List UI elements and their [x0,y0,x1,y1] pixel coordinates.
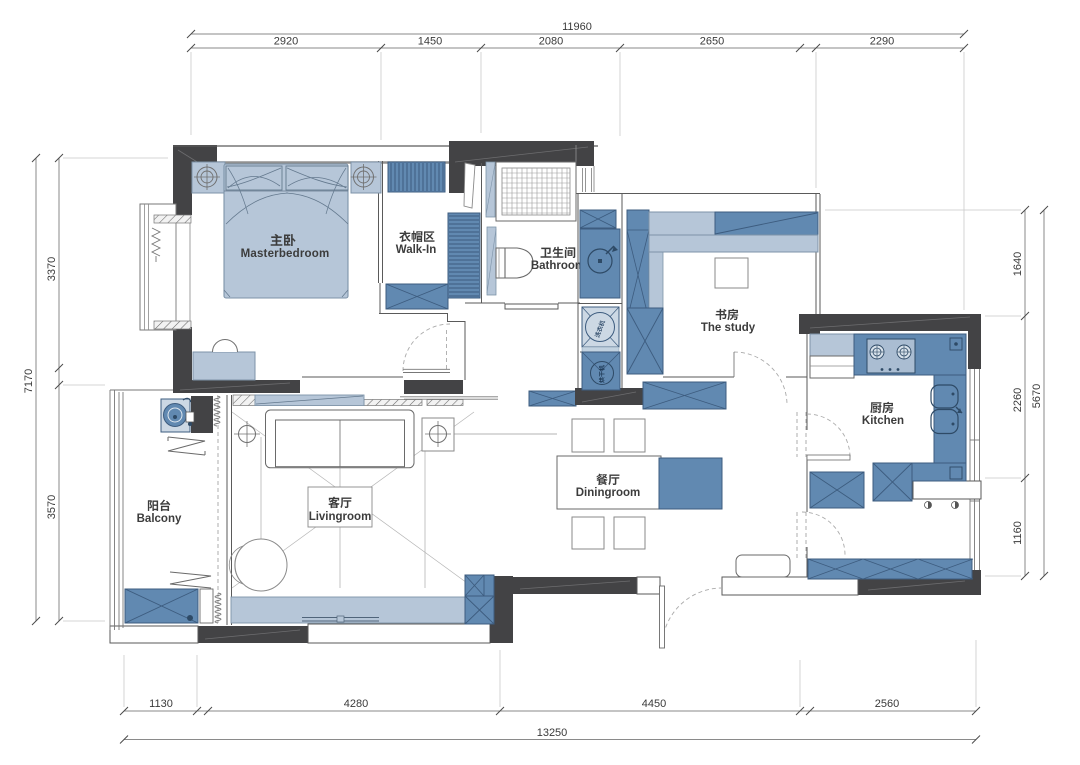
svg-text:4450: 4450 [642,698,666,710]
svg-text:2260: 2260 [1012,388,1024,412]
svg-text:5670: 5670 [1031,384,1043,408]
svg-text:11960: 11960 [562,21,592,33]
svg-text:The study: The study [701,322,756,334]
svg-text:Bathroom: Bathroom [531,260,585,272]
svg-text:Masterbedroom: Masterbedroom [241,248,330,260]
svg-text:Balcony: Balcony [137,513,182,525]
svg-text:Walk-In: Walk-In [396,244,436,256]
svg-text:2080: 2080 [539,36,563,48]
svg-text:3570: 3570 [46,495,58,519]
svg-text:1130: 1130 [149,698,173,710]
svg-text:1640: 1640 [1012,252,1024,276]
svg-text:2920: 2920 [274,36,298,48]
svg-text:4280: 4280 [344,698,368,710]
svg-text:Livingroom: Livingroom [309,511,372,523]
svg-text:2290: 2290 [870,36,894,48]
svg-text:13250: 13250 [537,727,568,739]
svg-text:2560: 2560 [875,698,899,710]
svg-text:1450: 1450 [418,36,442,48]
svg-text:1160: 1160 [1012,521,1024,545]
svg-text:2650: 2650 [700,36,724,48]
svg-text:Kitchen: Kitchen [862,415,904,427]
svg-text:3370: 3370 [46,257,58,281]
svg-text:Diningroom: Diningroom [576,487,641,499]
svg-text:7170: 7170 [23,369,35,393]
